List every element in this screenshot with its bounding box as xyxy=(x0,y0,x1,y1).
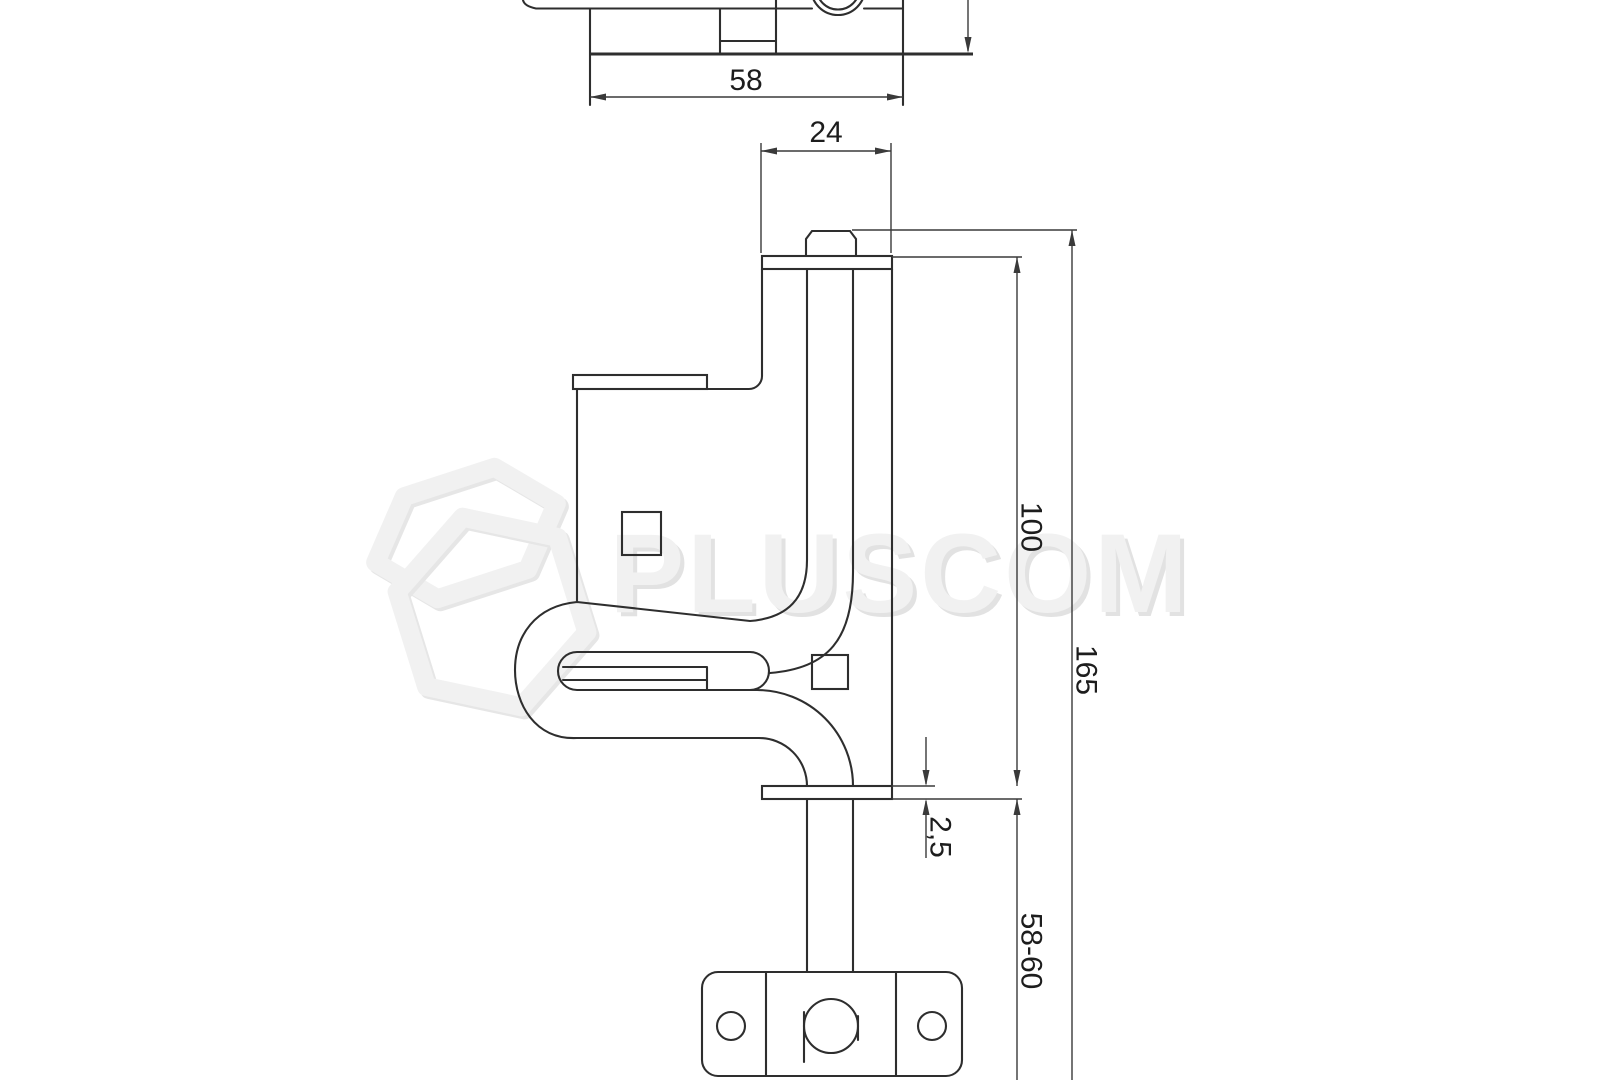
arrowhead-down-icon xyxy=(923,770,930,786)
watermark-brand: PLUSCOM xyxy=(610,511,1191,636)
foot-rod-bore-detail xyxy=(804,1012,858,1062)
foot-bracket-dividers xyxy=(766,972,896,1076)
arrowhead-up-icon xyxy=(1014,257,1021,273)
foot-rod-bore xyxy=(804,999,858,1053)
dim-top-view-depth-cutoff xyxy=(965,0,972,53)
bolt-head xyxy=(806,231,856,256)
arrowhead-down-icon xyxy=(1014,770,1021,786)
dim-guide-width: 24 xyxy=(761,116,891,253)
arrowhead-down-icon xyxy=(965,37,972,53)
dim-bolt-guide-length: 100 xyxy=(1014,257,1048,786)
dim-label-100: 100 xyxy=(1015,502,1048,552)
top-guide-flange xyxy=(762,256,892,269)
arrowhead-left-icon xyxy=(590,94,606,101)
plate-top-edge xyxy=(573,269,762,389)
dim-label-58-60: 58-60 xyxy=(1015,913,1048,990)
dim-flange-thickness: 2,5 xyxy=(923,737,957,858)
dim-label-2-5: 2,5 xyxy=(924,816,957,858)
plate-edge-through-gap xyxy=(563,667,707,690)
dim-rod-extension: 58-60 xyxy=(1014,799,1048,1080)
foot-bracket-body xyxy=(702,972,962,1076)
spring-gap-outline xyxy=(558,652,853,786)
arrowhead-up-icon xyxy=(923,799,930,815)
dim-top-width: 58 xyxy=(590,64,903,101)
arrowhead-up-icon xyxy=(1014,799,1021,815)
arrowhead-up-icon xyxy=(1069,230,1076,246)
technical-drawing-page: PLUSCOM PLUSCOM xyxy=(0,0,1620,1080)
watermark: PLUSCOM PLUSCOM xyxy=(359,453,1194,720)
dim-label-24: 24 xyxy=(809,116,842,149)
bottom-guide-flange xyxy=(762,786,892,799)
dim-label-165: 165 xyxy=(1070,645,1103,695)
arrowhead-left-icon xyxy=(761,148,777,155)
rod-lower xyxy=(807,799,853,972)
arrowhead-right-icon xyxy=(875,148,891,155)
dim-overall-length: 165 xyxy=(1069,230,1103,1080)
arrowhead-right-icon xyxy=(887,94,903,101)
foot-screw-hole-left xyxy=(717,1012,745,1040)
technical-drawing-canvas: PLUSCOM PLUSCOM xyxy=(0,0,1620,1080)
dim-ext-24 xyxy=(761,143,891,253)
dim-label-58: 58 xyxy=(729,64,762,97)
foot-bracket xyxy=(702,972,962,1076)
knob-inner-circle xyxy=(817,0,860,10)
foot-screw-hole-right xyxy=(918,1012,946,1040)
knob-outer-circle xyxy=(811,0,865,15)
plate-top-tab xyxy=(573,375,707,389)
